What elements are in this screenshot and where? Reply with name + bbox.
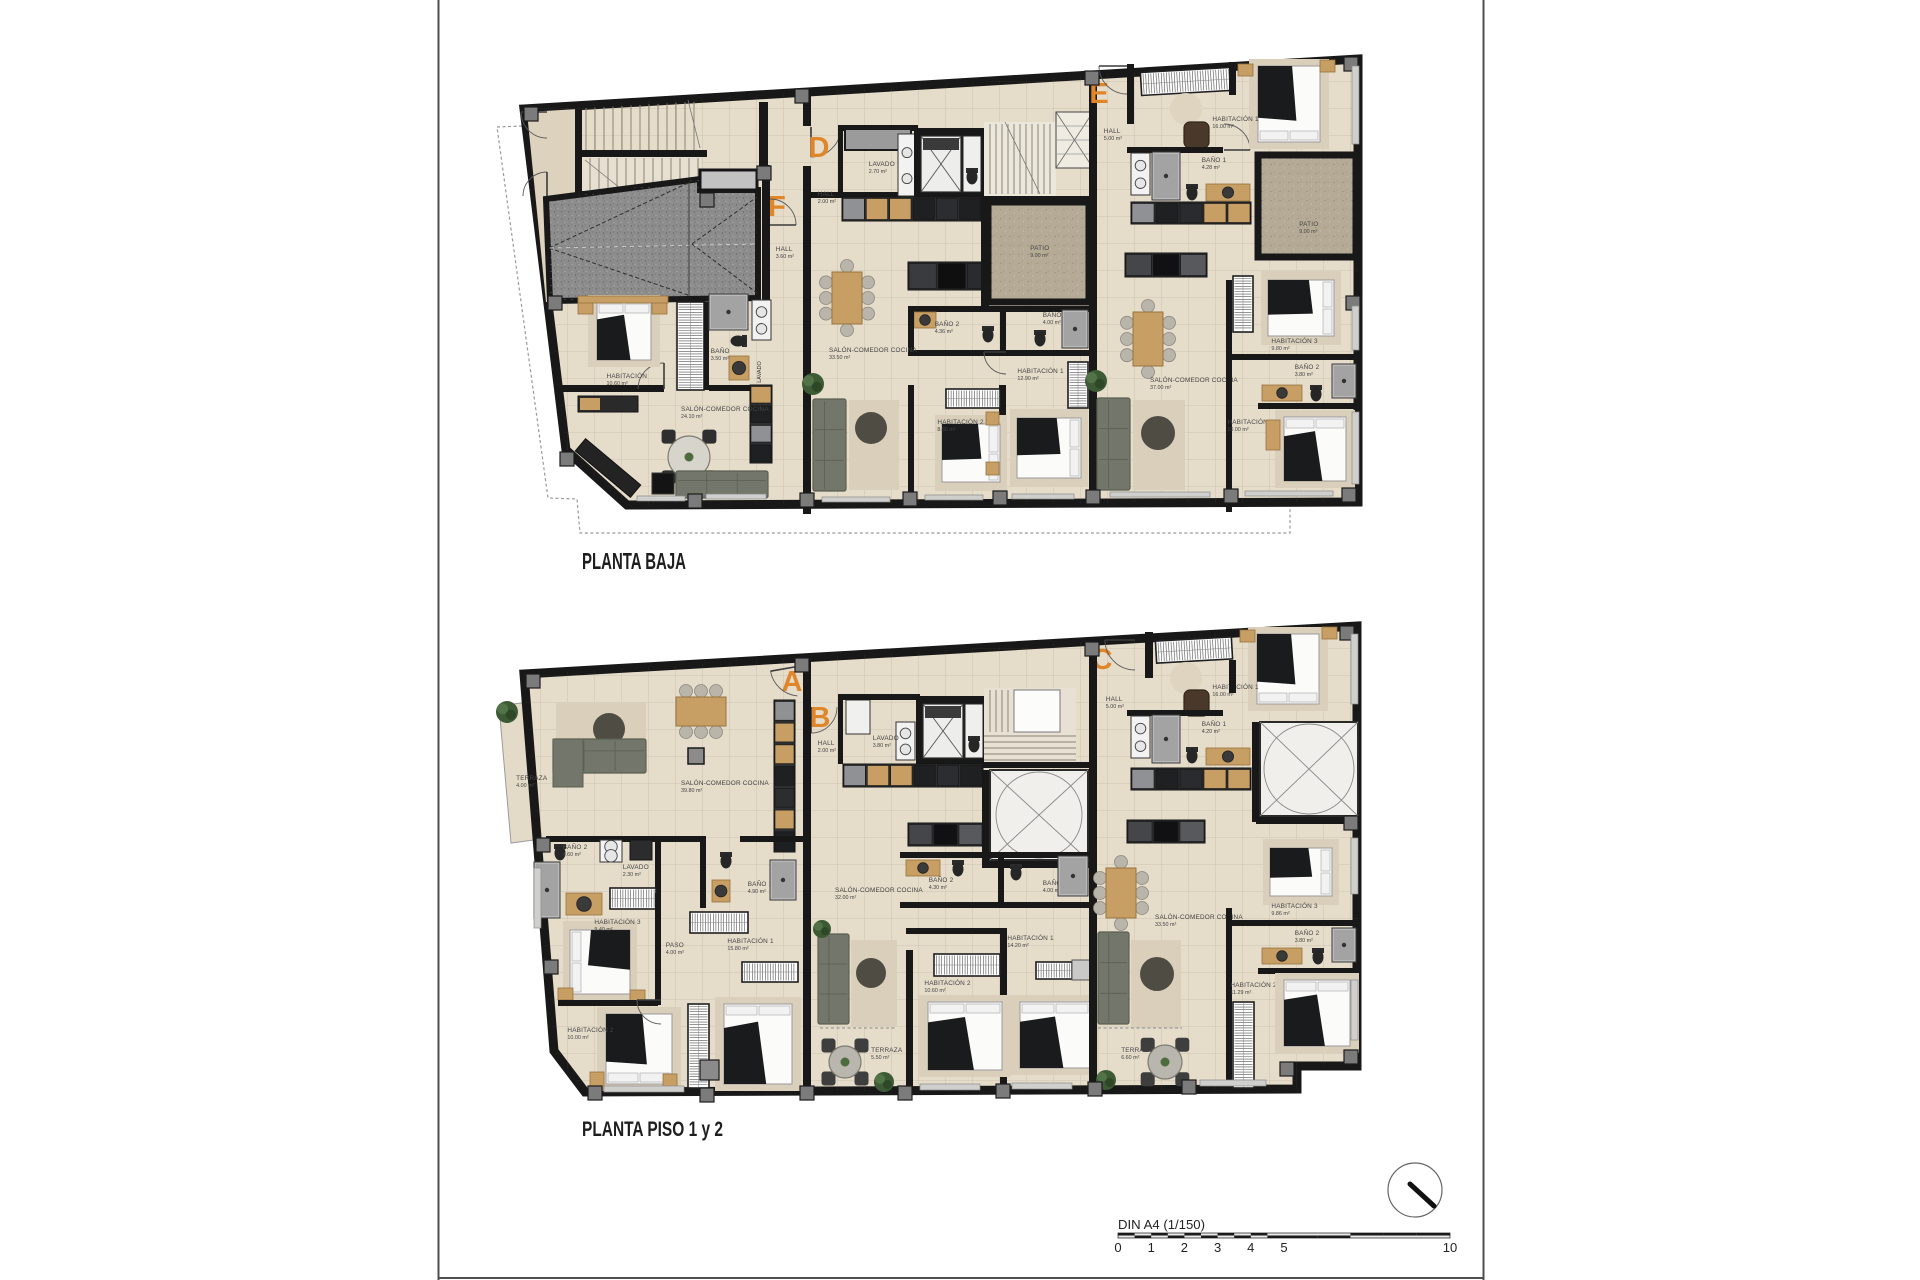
svg-text:BAÑO 1: BAÑO 1 xyxy=(1202,155,1227,164)
svg-text:F: F xyxy=(768,191,786,223)
svg-text:3.80 m²: 3.80 m² xyxy=(1295,938,1313,944)
svg-text:BAÑO 1: BAÑO 1 xyxy=(748,879,773,888)
svg-text:LAVADO: LAVADO xyxy=(873,735,899,742)
svg-text:3.80 m²: 3.80 m² xyxy=(873,743,891,749)
svg-text:BAÑO 2: BAÑO 2 xyxy=(929,875,954,884)
svg-text:4.00 m²: 4.00 m² xyxy=(516,783,534,789)
svg-text:0: 0 xyxy=(1114,1240,1121,1255)
svg-text:SALÓN-COMEDOR COCINA: SALÓN-COMEDOR COCINA xyxy=(681,778,769,787)
svg-text:10.60 m²: 10.60 m² xyxy=(607,381,628,387)
svg-text:16.00 m²: 16.00 m² xyxy=(1212,124,1233,130)
svg-text:SALÓN-COMEDOR COCINA: SALÓN-COMEDOR COCINA xyxy=(681,404,769,413)
svg-text:3.50 m²: 3.50 m² xyxy=(711,356,729,362)
svg-text:LAVADO: LAVADO xyxy=(757,361,763,383)
svg-text:2: 2 xyxy=(1181,1240,1188,1255)
svg-text:4.00 m²: 4.00 m² xyxy=(1043,320,1061,326)
svg-text:LAVADO: LAVADO xyxy=(623,864,649,871)
svg-text:BAÑO 2: BAÑO 2 xyxy=(1295,362,1320,371)
svg-text:SALÓN-COMEDOR COCINA: SALÓN-COMEDOR COCINA xyxy=(829,345,917,354)
svg-text:3.80 m²: 3.80 m² xyxy=(1295,372,1313,378)
svg-text:HALL: HALL xyxy=(1104,128,1121,135)
svg-text:SALÓN-COMEDOR COCINA: SALÓN-COMEDOR COCINA xyxy=(1150,375,1238,384)
svg-text:HALL: HALL xyxy=(1106,696,1123,703)
svg-text:2.70 m²: 2.70 m² xyxy=(869,169,887,175)
svg-text:2.30 m²: 2.30 m² xyxy=(623,872,641,878)
svg-text:SALÓN-COMEDOR COCINA: SALÓN-COMEDOR COCINA xyxy=(835,885,923,894)
svg-text:12.90 m²: 12.90 m² xyxy=(1017,376,1038,382)
svg-text:4.00 m²: 4.00 m² xyxy=(666,950,684,956)
svg-text:HABITACIÓN 3: HABITACIÓN 3 xyxy=(594,917,641,926)
svg-text:PATIO: PATIO xyxy=(1299,221,1318,228)
svg-text:TERRAZA: TERRAZA xyxy=(516,775,548,782)
svg-text:HABITACIÓN 1: HABITACIÓN 1 xyxy=(727,936,774,945)
svg-text:LAVADO: LAVADO xyxy=(869,161,895,168)
svg-text:9.86 m²: 9.86 m² xyxy=(1271,911,1289,917)
svg-text:BAÑO 1: BAÑO 1 xyxy=(1202,719,1227,728)
svg-text:3.60 m²: 3.60 m² xyxy=(776,254,794,260)
svg-text:HABITACIÓN 2: HABITACIÓN 2 xyxy=(924,978,971,987)
svg-text:TERRAZA: TERRAZA xyxy=(1121,1047,1153,1054)
svg-text:10: 10 xyxy=(1443,1240,1457,1255)
svg-text:HALL: HALL xyxy=(818,740,835,747)
svg-text:4.30 m²: 4.30 m² xyxy=(929,885,947,891)
svg-text:BAÑO 2: BAÑO 2 xyxy=(1295,928,1320,937)
svg-text:HABITACIÓN 2: HABITACIÓN 2 xyxy=(1230,980,1277,989)
svg-text:4.60 m²: 4.60 m² xyxy=(563,852,581,858)
svg-text:9.00 m²: 9.00 m² xyxy=(1030,253,1048,259)
svg-text:HABITACIÓN: HABITACIÓN xyxy=(607,371,648,380)
svg-text:BAÑO 2: BAÑO 2 xyxy=(935,319,960,328)
svg-text:1: 1 xyxy=(1148,1240,1155,1255)
svg-text:10.00 m²: 10.00 m² xyxy=(567,1035,588,1041)
svg-text:HABITACIÓN 2: HABITACIÓN 2 xyxy=(567,1025,614,1034)
svg-text:4.36 m²: 4.36 m² xyxy=(935,329,953,335)
svg-text:10.60 m²: 10.60 m² xyxy=(924,988,945,994)
svg-text:BAÑO 2: BAÑO 2 xyxy=(563,842,588,851)
svg-text:4.90 m²: 4.90 m² xyxy=(748,889,766,895)
svg-text:HABITACIÓN 1: HABITACIÓN 1 xyxy=(1007,933,1054,942)
svg-text:2.00 m²: 2.00 m² xyxy=(818,199,836,205)
svg-text:HABITACIÓN 3: HABITACIÓN 3 xyxy=(1271,336,1318,345)
svg-text:HALL: HALL xyxy=(818,191,835,198)
svg-text:6.60 m²: 6.60 m² xyxy=(1121,1055,1139,1061)
svg-text:5.00 m²: 5.00 m² xyxy=(1104,136,1122,142)
svg-text:5: 5 xyxy=(1280,1240,1287,1255)
svg-text:4.20 m²: 4.20 m² xyxy=(1202,729,1220,735)
svg-text:HABITACIÓN 1: HABITACIÓN 1 xyxy=(1017,366,1064,375)
svg-text:9.40 m²: 9.40 m² xyxy=(594,927,612,933)
svg-text:32.00 m²: 32.00 m² xyxy=(835,895,856,901)
svg-text:5.50 m²: 5.50 m² xyxy=(871,1055,889,1061)
svg-text:8.30 m²: 8.30 m² xyxy=(937,427,955,433)
svg-text:4: 4 xyxy=(1247,1240,1254,1255)
svg-text:9.80 m²: 9.80 m² xyxy=(1271,346,1289,352)
svg-text:11.29 m²: 11.29 m² xyxy=(1230,990,1251,996)
svg-text:HABITACIÓN 2: HABITACIÓN 2 xyxy=(937,417,984,426)
svg-text:15.80 m²: 15.80 m² xyxy=(727,946,748,952)
svg-text:39.80 m²: 39.80 m² xyxy=(681,788,702,794)
svg-text:HABITACIÓN 1: HABITACIÓN 1 xyxy=(1212,114,1259,123)
svg-text:33.50 m²: 33.50 m² xyxy=(829,355,850,361)
svg-text:33.50 m²: 33.50 m² xyxy=(1155,922,1176,928)
svg-text:D: D xyxy=(809,132,830,164)
svg-text:9.00 m²: 9.00 m² xyxy=(1299,229,1317,235)
svg-text:2.00 m²: 2.00 m² xyxy=(818,748,836,754)
svg-text:37.00 m²: 37.00 m² xyxy=(1150,385,1171,391)
svg-text:5.00 m²: 5.00 m² xyxy=(1106,704,1124,710)
svg-text:4.28 m²: 4.28 m² xyxy=(1202,165,1220,171)
svg-text:PLANTA PISO 1 y 2: PLANTA PISO 1 y 2 xyxy=(582,1118,723,1141)
svg-text:BAÑO: BAÑO xyxy=(711,346,730,355)
svg-text:10.00 m²: 10.00 m² xyxy=(1227,427,1248,433)
svg-text:DIN A4 (1/150): DIN A4 (1/150) xyxy=(1118,1218,1205,1232)
svg-text:TERRAZA: TERRAZA xyxy=(871,1047,903,1054)
svg-text:3: 3 xyxy=(1214,1240,1221,1255)
svg-text:B: B xyxy=(810,702,831,734)
svg-text:HABITACIÓN 3: HABITACIÓN 3 xyxy=(1271,901,1318,910)
svg-text:HALL: HALL xyxy=(776,246,793,253)
svg-text:PATIO: PATIO xyxy=(1030,245,1049,252)
svg-text:PLANTA BAJA: PLANTA BAJA xyxy=(582,548,686,574)
svg-text:14.20 m²: 14.20 m² xyxy=(1007,943,1028,949)
svg-text:24.10 m²: 24.10 m² xyxy=(681,414,702,420)
svg-text:PASO: PASO xyxy=(666,942,684,949)
